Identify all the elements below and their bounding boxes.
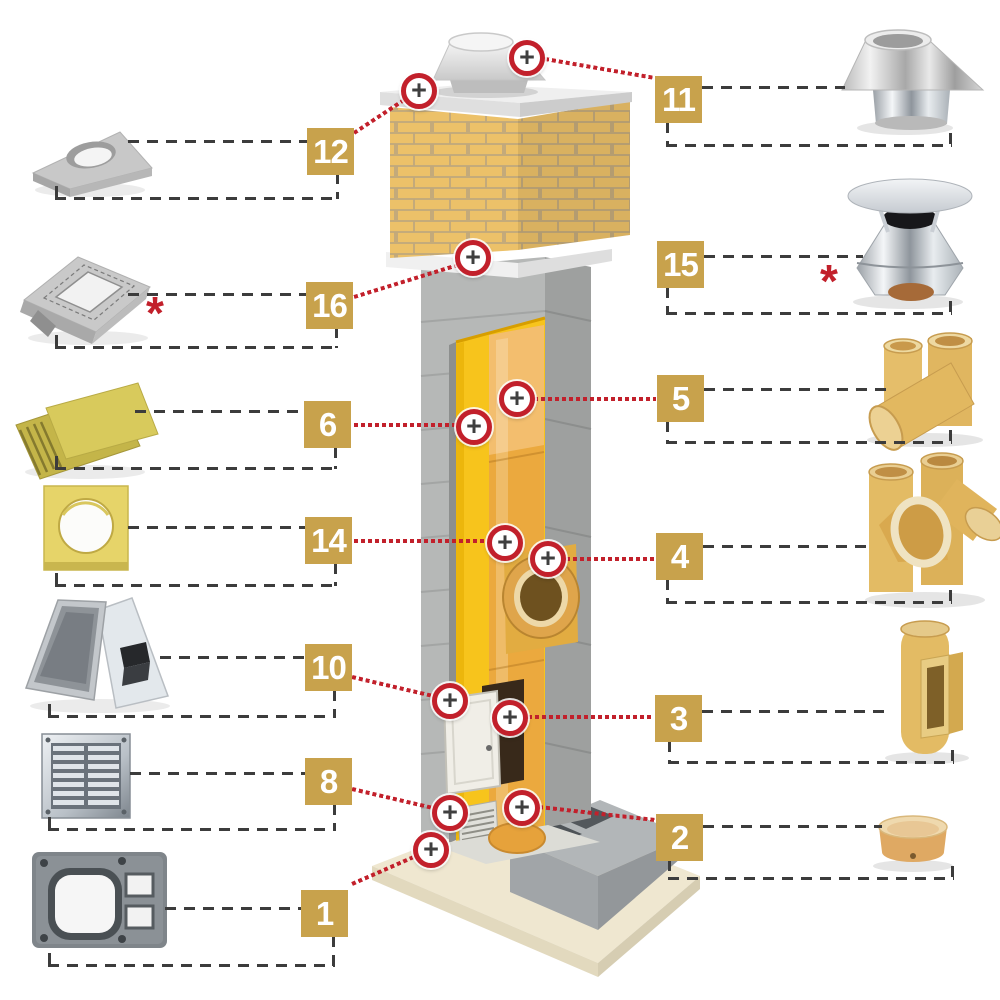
leader-6 [354,423,456,427]
connector-11-drop [666,122,669,146]
connector-8-stub [48,817,51,830]
plus-marker-14[interactable]: + [487,525,523,561]
callout-label-4: 4 [656,533,703,580]
plus-icon: + [442,687,458,714]
callout-label-1: 1 [301,890,348,937]
connector-14-under [55,584,337,587]
connector-16-drop [335,327,338,348]
connector-6-line [135,410,304,413]
connector-16-under [55,346,338,349]
plus-icon: + [423,836,439,863]
product-10-inspection-doors [26,598,170,713]
connector-8-line [130,772,305,775]
product-5-ceramic-pipes [863,333,983,455]
leader-14 [354,539,487,543]
connector-1-drop [332,936,335,966]
plus-marker-2[interactable]: + [504,790,540,826]
connector-8-drop [333,804,336,830]
connector-5-line [704,388,887,391]
connector-4-under [666,601,952,604]
connector-10-drop [333,690,336,717]
callout-label-10: 10 [305,644,352,691]
connector-15-stub [949,301,952,314]
connector-3-line [702,710,890,713]
asterisk-note-15: * [820,258,838,304]
connector-12-line [128,140,307,143]
leader-3 [528,715,654,719]
connector-3-under [668,761,954,764]
connector-1-under [48,964,335,967]
plus-marker-5[interactable]: + [499,381,535,417]
connector-3-stub [951,750,954,763]
connector-6-drop [334,447,337,469]
callout-label-15: 15 [657,241,704,288]
plus-icon: + [540,545,556,572]
connector-2-under [668,877,954,880]
callout-label-6: 6 [304,401,351,448]
product-1-chimney-block [32,852,167,948]
connector-11-under [666,144,952,147]
chimney-brick-head [390,100,630,258]
plus-marker-11[interactable]: + [509,40,545,76]
product-2-condensate-bowl [873,816,953,872]
connector-14-line [128,526,305,529]
diagram-artwork [0,0,1000,1000]
plus-marker-1[interactable]: + [413,832,449,868]
plus-marker-12[interactable]: + [401,73,437,109]
connector-6-under [55,467,337,470]
product-3-inspection-pipe [885,621,969,764]
product-11-chimney-cap [842,30,983,135]
connector-14-drop [334,563,337,586]
asterisk-note-16: * [146,290,164,336]
plus-icon: + [442,799,458,826]
plus-icon: + [497,529,513,556]
connector-8-under [48,828,336,831]
plus-icon: + [514,794,530,821]
pipe-base-bowl [489,823,545,853]
callout-label-14: 14 [305,517,352,564]
callout-label-8: 8 [305,758,352,805]
connector-5-under [666,441,952,444]
product-6-insulation-boards [16,383,158,479]
plus-icon: + [502,704,518,731]
product-14-wool-collar [44,486,128,570]
plus-icon: + [519,44,535,71]
connector-15-line [704,255,863,258]
plus-marker-10[interactable]: + [432,683,468,719]
leader-4 [566,557,655,561]
connector-12-stub [55,186,58,199]
plus-marker-8[interactable]: + [432,795,468,831]
plus-icon: + [509,385,525,412]
connector-10-line [160,656,305,659]
callout-label-16: 16 [306,282,353,329]
connector-14-stub [55,573,58,586]
callout-label-11: 11 [655,76,702,123]
connector-5-drop [666,421,669,443]
connector-5-stub [949,430,952,443]
connector-15-drop [666,287,669,314]
plus-marker-6[interactable]: + [456,409,492,445]
connector-4-drop [666,579,669,603]
connector-1-line [165,907,301,910]
connector-1-stub [48,953,51,966]
product-15-rain-cap [848,179,972,309]
chimney-diagram: 12 11 16 15 6 5 14 4 10 3 8 2 1 + + + + … [0,0,1000,1000]
connector-10-stub [48,704,51,717]
connector-2-line [703,825,882,828]
connector-2-stub [951,866,954,879]
connector-10-under [48,715,336,718]
connector-11-stub [949,133,952,146]
callout-label-12: 12 [307,128,354,175]
product-16-cone-form [20,257,150,345]
product-4-ceramic-tee [865,453,1000,608]
leader-5 [534,397,656,401]
connector-4-stub [949,590,952,603]
connector-12-under [55,197,339,200]
callout-label-5: 5 [657,375,704,422]
connector-4-line [703,545,873,548]
connector-3-drop [668,741,671,763]
callout-label-3: 3 [655,695,702,742]
plus-marker-4[interactable]: + [530,541,566,577]
plus-icon: + [411,77,427,104]
connector-16-stub [55,335,58,348]
plus-marker-3[interactable]: + [492,700,528,736]
plus-icon: + [465,244,481,271]
connector-12-drop [336,173,339,199]
plus-icon: + [466,413,482,440]
connector-15-under [666,312,952,315]
product-8-ventilation-grille [42,734,130,818]
connector-6-stub [55,456,58,469]
plus-marker-16[interactable]: + [455,240,491,276]
connector-11-line [702,86,845,89]
callout-label-2: 2 [656,814,703,861]
